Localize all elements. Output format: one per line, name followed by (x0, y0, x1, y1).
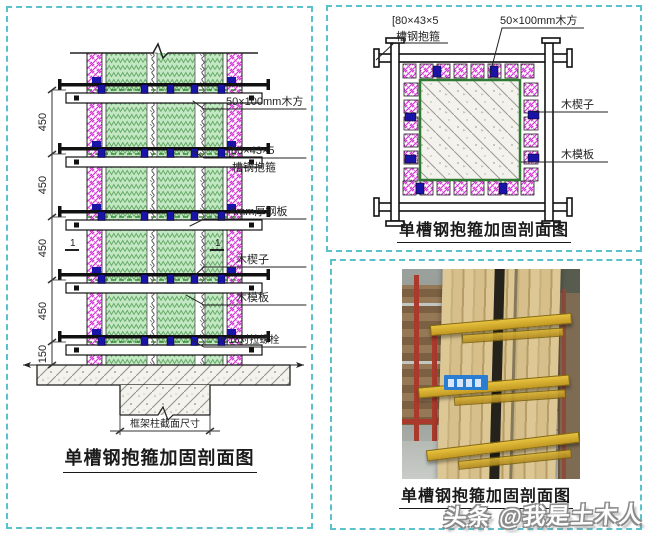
photo-blue-sign (444, 375, 488, 390)
label-channel-line2: 槽钢抱箍 (232, 160, 276, 174)
page: 450 450 450 450 150 1 1 50×100mm木方 [80×4… (0, 0, 647, 537)
plan-label-channel-line2: 槽钢抱箍 (396, 29, 440, 43)
photo-panel: 单槽钢抱箍加固剖面图 (330, 259, 642, 530)
label-column-size: 框架柱截面尺寸 (130, 417, 200, 430)
section-mark-left: 1 (70, 238, 76, 249)
plan-label-wood-square: 50×100mm木方 (500, 13, 577, 27)
dim-450-3: 450 (37, 239, 49, 257)
dim-450-1: 450 (37, 113, 49, 131)
section-drawing-panel: 450 450 450 450 150 1 1 50×100mm木方 [80×4… (6, 6, 313, 529)
label-formwork: 木模板 (236, 290, 269, 304)
plan-drawing-panel: [80×43×5 槽钢抱箍 50×100mm木方 木楔子 木模板 单槽钢抱箍加固… (326, 5, 642, 252)
site-photo (402, 269, 580, 479)
watermark: 头条 @我是土木人 (443, 495, 645, 532)
dim-150: 150 (37, 345, 49, 363)
plan-drawing: [80×43×5 槽钢抱箍 50×100mm木方 木楔子 木模板 (328, 7, 640, 250)
plan-caption-text: 单槽钢抱箍加固剖面图 (397, 216, 571, 243)
section-caption-text: 单槽钢抱箍加固剖面图 (63, 444, 257, 473)
column-size-dim: 框架柱截面尺寸 (110, 415, 220, 435)
plan-label-channel-line1: [80×43×5 (392, 15, 439, 27)
label-steel-plate: 4mm厚钢板 (230, 204, 287, 218)
concrete-column (420, 80, 520, 180)
dimension-chain: 450 450 450 450 150 (37, 87, 66, 368)
foundation (23, 362, 304, 420)
plan-label-formwork: 木模板 (561, 147, 594, 161)
label-bolt: M16对拉螺栓 (220, 333, 279, 346)
section-mark-right: 1 (215, 238, 221, 249)
plan-caption: 单槽钢抱箍加固剖面图 (328, 216, 640, 243)
plan-label-wedge: 木楔子 (561, 98, 594, 111)
section-caption: 单槽钢抱箍加固剖面图 (8, 444, 311, 473)
label-channel-line1: [80×43×5 (228, 145, 275, 157)
dim-450-4: 450 (37, 302, 49, 320)
sign-marks (448, 379, 484, 387)
label-wedge: 木楔子 (236, 253, 269, 266)
label-wood-square: 50×100mm木方 (226, 94, 303, 108)
dim-450-2: 450 (37, 176, 49, 194)
